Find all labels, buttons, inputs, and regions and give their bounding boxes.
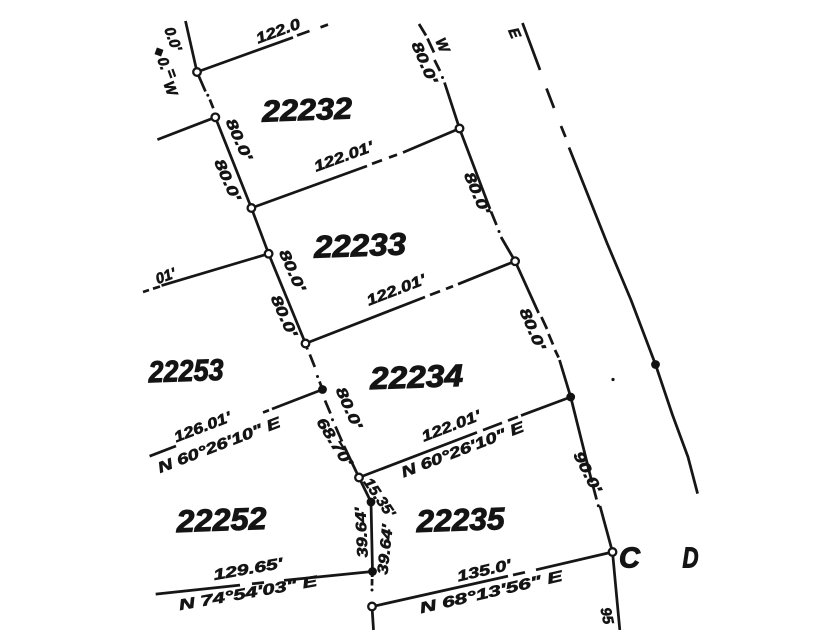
svg-text:D: D [683, 543, 699, 575]
svg-text:22252: 22252 [175, 501, 267, 539]
svg-text:22234: 22234 [368, 358, 463, 396]
svg-text:22235: 22235 [415, 501, 506, 539]
svg-text:C: C [619, 543, 641, 575]
svg-text:39.64': 39.64' [352, 507, 372, 558]
svg-text:22253: 22253 [147, 354, 224, 390]
svg-text:22232: 22232 [260, 92, 352, 128]
svg-text:22233: 22233 [312, 226, 406, 264]
